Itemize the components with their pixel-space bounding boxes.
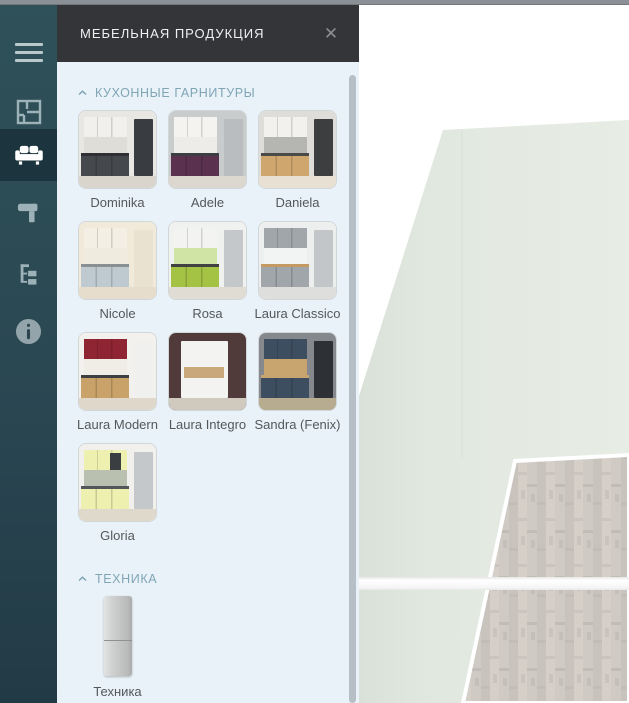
thumb-base-cabinets [81,378,129,398]
thumb-tall-unit [134,230,152,288]
thumb-upper-cabinets [84,228,127,248]
thumb-base-cabinets [81,267,129,287]
thumb-upper-cabinets [174,117,217,137]
product-cell: Nicole [78,221,157,322]
product-thumbnail-dominika[interactable] [78,110,157,189]
collapse-chevron-icon [78,576,87,582]
sidebar-item-info[interactable] [0,305,57,357]
product-cell: Gloria [78,443,157,544]
product-label: Laura Modern [77,416,158,433]
thumb-upper-cabinets [264,117,307,137]
thumb-floor [79,398,156,410]
product-label: Daniela [275,194,319,211]
thumb-tall-unit [134,341,152,399]
section-header-1[interactable]: ТЕХНИКА [66,572,359,586]
product-label: Nicole [99,305,135,322]
thumb-hood [110,453,121,470]
fridge-image [104,596,132,676]
close-icon[interactable]: ✕ [321,23,341,43]
product-cell: Dominika [78,110,157,211]
product-cell: Laura Classico [258,221,337,322]
product-cell: Daniela [258,110,337,211]
thumb-floor [169,176,246,188]
thumb-tall-unit [224,119,242,177]
thumb-backsplash [84,137,127,154]
thumb-backsplash [84,359,127,376]
thumb-backsplash [174,137,217,154]
product-label: Техника [93,683,141,700]
sidebar [0,4,57,703]
panel-header: МЕБЕЛЬНАЯ ПРОДУКЦИЯ ✕ [57,4,359,62]
tree-icon [17,263,41,285]
section-title: ТЕХНИКА [95,572,157,586]
thumb-tall-unit [314,341,332,399]
product-thumbnail-gloria[interactable] [78,443,157,522]
floor-plan-icon [16,99,42,125]
product-label: Dominika [90,194,144,211]
product-thumbnail-laura-modern[interactable] [78,332,157,411]
product-cell: Rosa [168,221,247,322]
sidebar-item-menu[interactable] [0,26,57,78]
product-thumbnail-laura-classico[interactable] [258,221,337,300]
thumb-floor [79,287,156,299]
product-label: Gloria [100,527,135,544]
product-cell: Adele [168,110,247,211]
thumb-backsplash [264,359,307,376]
panel-scrollbar[interactable] [349,75,356,703]
thumb-base-cabinets [261,378,309,398]
paint-roller-icon [17,201,41,225]
thumb-backsplash [264,137,307,154]
thumb-tall-unit [314,119,332,177]
product-thumbnail-adele[interactable] [168,110,247,189]
thumb-floor [259,398,336,410]
thumb-tall-unit [224,230,242,288]
thumb-tall-unit [134,452,152,510]
viewport-3d[interactable] [359,4,629,703]
fridge-door-split [104,640,132,641]
thumb-base-cabinets [171,267,219,287]
thumb-floor [259,176,336,188]
thumb-floor [169,398,246,410]
product-label: Sandra (Fenix) [255,416,341,433]
thumb-base-cabinets [81,156,129,176]
room-scene [359,4,629,703]
thumb-base-cabinets [171,156,219,176]
furniture-products-panel: МЕБЕЛЬНАЯ ПРОДУКЦИЯ ✕ КУХОННЫЕ ГАРНИТУРЫ… [57,4,359,703]
product-cell: Sandra (Fenix) [258,332,337,433]
sidebar-item-furniture[interactable] [0,129,57,181]
sidebar-item-materials[interactable] [0,187,57,239]
thumb-base-cabinets [81,489,129,509]
thumb-backsplash [84,248,127,265]
thumb-base-cabinets [261,156,309,176]
thumb-base-cabinets [261,267,309,287]
panel-title: МЕБЕЛЬНАЯ ПРОДУКЦИЯ [80,26,265,41]
thumb-floor [169,287,246,299]
thumb-upper-cabinets [84,339,127,359]
product-cell: Laura Modern [78,332,157,433]
collapse-chevron-icon [78,90,87,96]
product-cell: Laura Integro [168,332,247,433]
product-grid-1: Техника [78,596,359,700]
info-icon [15,318,42,345]
thumb-backsplash [264,248,307,265]
product-thumbnail-nicole[interactable] [78,221,157,300]
thumb-floor [79,176,156,188]
product-thumbnail-sandra-fenix-[interactable] [258,332,337,411]
thumb-upper-cabinets [264,228,307,248]
hamburger-icon [15,43,43,62]
product-cell: Техника [78,596,157,700]
sidebar-item-project-tree[interactable] [0,248,57,300]
product-thumbnail-rosa[interactable] [168,221,247,300]
product-grid-0: DominikaAdeleDanielaNicoleRosaLaura Clas… [78,110,359,544]
product-thumbnail-laura-integro[interactable] [168,332,247,411]
product-label: Adele [191,194,224,211]
thumb-backsplash [84,470,127,487]
panel-body: КУХОННЫЕ ГАРНИТУРЫDominikaAdeleDanielaNi… [57,62,359,703]
product-thumbnail-техника[interactable] [78,596,157,678]
thumb-floor [259,287,336,299]
thumb-tall-unit [314,230,332,288]
thumb-upper-cabinets [264,339,307,359]
sofa-icon [13,144,45,166]
product-label: Laura Classico [255,305,341,322]
product-label: Rosa [192,305,222,322]
thumb-floor [79,509,156,521]
section-header-0[interactable]: КУХОННЫЕ ГАРНИТУРЫ [66,86,359,100]
top-window-strip [0,0,629,5]
product-label: Laura Integro [169,416,246,433]
thumb-upper-cabinets [84,117,127,137]
section-title: КУХОННЫЕ ГАРНИТУРЫ [95,86,255,100]
thumb-upper-cabinets [174,228,217,248]
product-thumbnail-daniela[interactable] [258,110,337,189]
thumb-backsplash [184,367,224,379]
thumb-backsplash [174,248,217,265]
thumb-tall-unit [134,119,152,177]
